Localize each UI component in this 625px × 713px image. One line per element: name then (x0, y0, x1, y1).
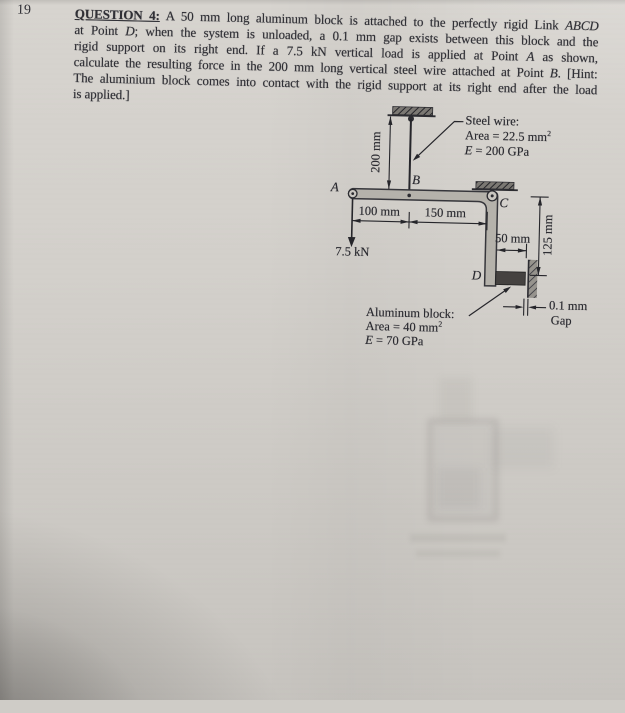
wall-face-line (528, 260, 529, 298)
page-number: 19 (17, 3, 31, 19)
point-a-label: A (331, 180, 339, 194)
dim-200mm-label: 200 mm (368, 120, 384, 184)
dim-125mm-label: 125 mm (540, 200, 556, 270)
aluminum-leader (469, 287, 509, 316)
point-c-label: C (499, 196, 508, 210)
c-support-base-line (472, 189, 518, 190)
steel-wire-note: Steel wire: Area = 22.5 mm2 E = 200 GPa (465, 113, 552, 161)
point-d-label: D (472, 268, 482, 282)
figure-diagram: A B C D 200 mm 100 mm 150 mm 50 mm 125 m… (323, 98, 625, 390)
load-label: 7.5 kN (335, 244, 369, 259)
wire-anchor-hatch (393, 107, 433, 116)
gap-value-label: 0.1 mm (549, 298, 588, 313)
steel-wire-leader (415, 121, 464, 161)
c-support-hatch (476, 181, 514, 189)
page-content: 19 QUESTION 4: A 50 mm long aluminum blo… (0, 0, 625, 713)
document-photo: { "page_number": "19", "question": { "li… (0, 0, 625, 700)
dim-50mm-label: 50 mm (481, 231, 545, 247)
dim-line-100-150 (352, 221, 487, 224)
point-b-label: B (412, 173, 420, 187)
steel-wire (409, 119, 411, 191)
dim-line-200 (389, 116, 391, 188)
aluminum-modulus: E = 70 GPa (365, 333, 454, 349)
paper-background: 19 QUESTION 4: A 50 mm long aluminum blo… (0, 0, 625, 700)
aluminum-block (496, 271, 526, 285)
dim-150mm-label: 150 mm (413, 205, 477, 221)
aluminum-note: Aluminum block: Area = 40 mm2 E = 70 GPa (365, 305, 455, 350)
gap-word-label: Gap (551, 313, 572, 327)
pin-support-at-c (472, 181, 518, 190)
dim-100mm-label: 100 mm (347, 203, 411, 219)
rigid-wall-support (528, 260, 538, 298)
steel-wire-modulus: E = 200 GPa (465, 144, 551, 161)
